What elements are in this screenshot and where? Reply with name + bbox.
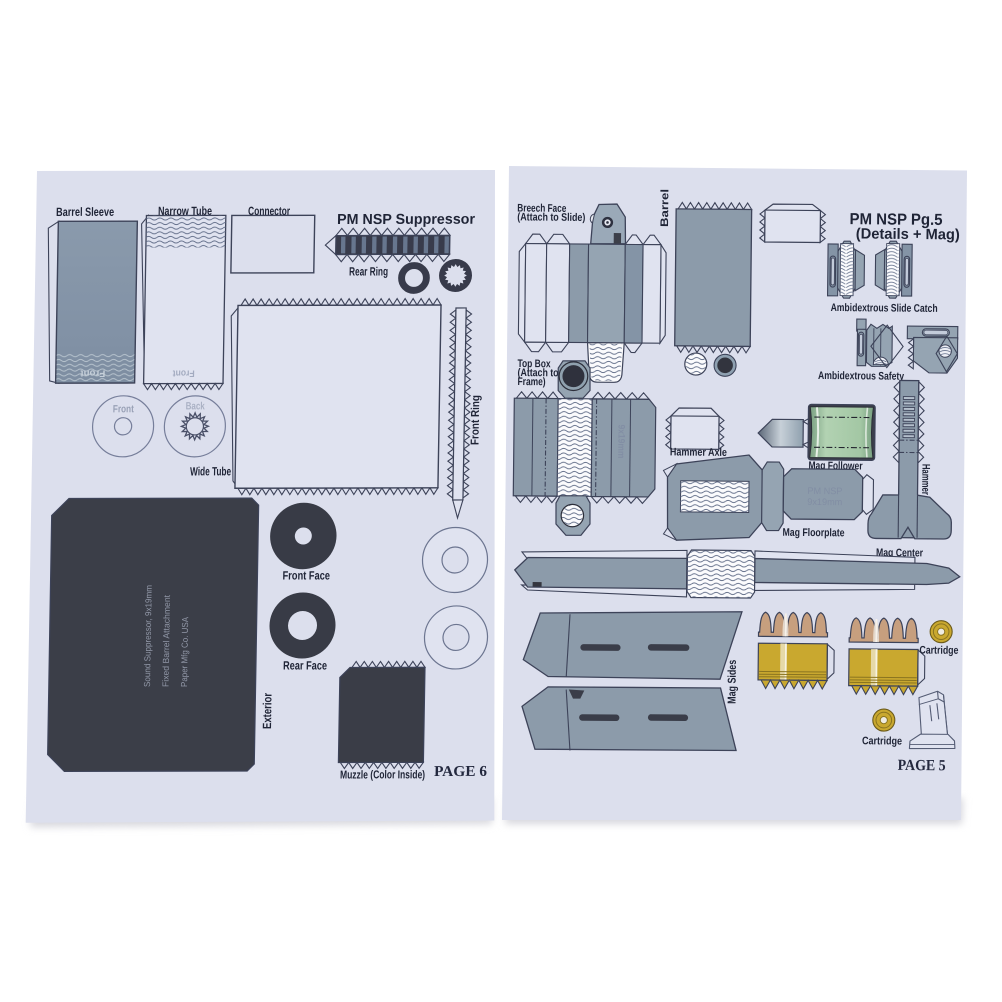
svg-text:Front Face: Front Face [282,568,330,582]
svg-text:Mag Sides: Mag Sides [726,660,738,704]
svg-text:Wide Tube: Wide Tube [190,464,231,478]
svg-text:Ambidextrous Slide Catch: Ambidextrous Slide Catch [831,302,938,315]
svg-text:Front: Front [113,403,135,415]
svg-text:(Details + Mag): (Details + Mag) [856,226,960,244]
svg-text:PM NSP Suppressor: PM NSP Suppressor [337,212,476,228]
svg-text:Cartridge: Cartridge [919,645,958,657]
svg-text:Hammer Axle: Hammer Axle [670,446,727,458]
svg-text:Barrel: Barrel [659,189,671,227]
svg-text:Hammer: Hammer [919,464,931,496]
svg-text:Fixed Barrel Attachment: Fixed Barrel Attachment [160,594,172,687]
svg-text:Front: Front [79,367,105,378]
svg-text:Cartridge: Cartridge [862,735,902,747]
svg-text:Back: Back [186,400,205,412]
svg-text:9x19mm: 9x19mm [615,424,626,458]
svg-text:Ambidextrous Safety: Ambidextrous Safety [818,370,905,383]
svg-text:Paper Mfg Co. USA: Paper Mfg Co. USA [179,617,190,687]
svg-text:Sound Suppressor, 9x19mm: Sound Suppressor, 9x19mm [142,585,154,687]
svg-text:Rear Face: Rear Face [283,658,327,672]
svg-text:Mag Floorplate: Mag Floorplate [782,527,844,540]
svg-text:Exterior: Exterior [260,693,275,729]
svg-text:Front: Front [172,367,195,378]
svg-text:PAGE 5: PAGE 5 [898,757,946,774]
svg-text:Muzzle (Color Inside): Muzzle (Color Inside) [340,769,425,781]
svg-text:(Attach to Slide): (Attach to Slide) [517,211,585,224]
svg-text:Rear Ring: Rear Ring [349,264,388,278]
svg-text:PM NSP: PM NSP [807,486,842,497]
svg-text:Barrel Sleeve: Barrel Sleeve [56,205,114,219]
svg-text:9x19mm: 9x19mm [807,497,842,508]
svg-text:PAGE 6: PAGE 6 [434,764,488,780]
svg-text:Front Ring: Front Ring [469,395,482,445]
svg-text:Frame): Frame) [518,376,546,388]
